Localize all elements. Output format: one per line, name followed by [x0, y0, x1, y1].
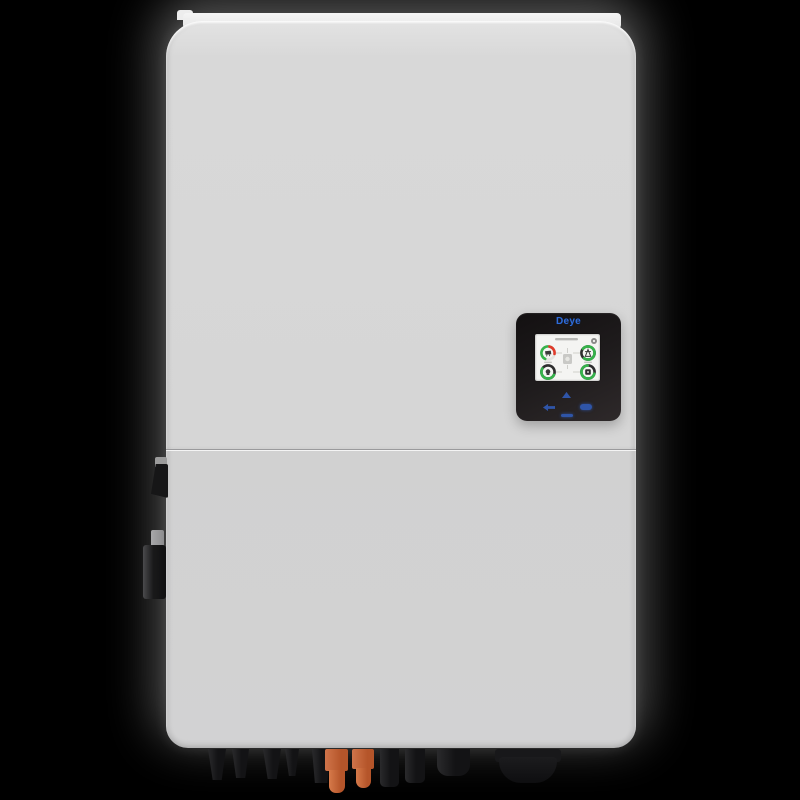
- product-image: Deye: [0, 0, 800, 800]
- load-gauge: [539, 363, 557, 381]
- orange-terminal-1: [325, 749, 348, 771]
- esc-key[interactable]: [543, 404, 555, 411]
- tapered-plug-3: [263, 749, 281, 779]
- battery-gauge: [580, 364, 596, 380]
- grid-gauge: [579, 344, 598, 363]
- round-gland: [437, 749, 470, 776]
- grid-tower-icon: [585, 349, 591, 356]
- display-module: Deye: [516, 313, 621, 421]
- tapered-plug-2: [232, 749, 249, 778]
- black-plug-2: [405, 749, 425, 783]
- up-key[interactable]: [562, 392, 571, 398]
- tapered-plug-4: [285, 749, 299, 776]
- antenna-port: [151, 464, 168, 498]
- home-flow-icon: [563, 354, 572, 364]
- lcd-screen: [535, 334, 600, 381]
- orange-terminal-1-pin: [329, 770, 345, 793]
- solar-panel-icon: [545, 351, 551, 357]
- tapered-plug-1: [208, 749, 226, 780]
- large-gland: [499, 757, 557, 783]
- black-plug-1: [380, 749, 399, 787]
- pv-gauge: [539, 344, 557, 362]
- orange-terminal-2: [352, 749, 374, 769]
- load-icon: [546, 369, 551, 375]
- gear-icon: [591, 338, 597, 344]
- energy-flow-graphic: [535, 334, 600, 381]
- battery-icon: [585, 369, 591, 375]
- dc-switch[interactable]: [143, 545, 166, 599]
- lower-panel: [166, 450, 636, 748]
- down-key[interactable]: [561, 414, 573, 417]
- enter-key[interactable]: [580, 404, 592, 410]
- screen-title-text: [555, 338, 578, 340]
- brand-logo: Deye: [516, 316, 621, 327]
- inverter-enclosure: Deye: [166, 21, 636, 748]
- orange-terminal-2-pin: [356, 768, 371, 788]
